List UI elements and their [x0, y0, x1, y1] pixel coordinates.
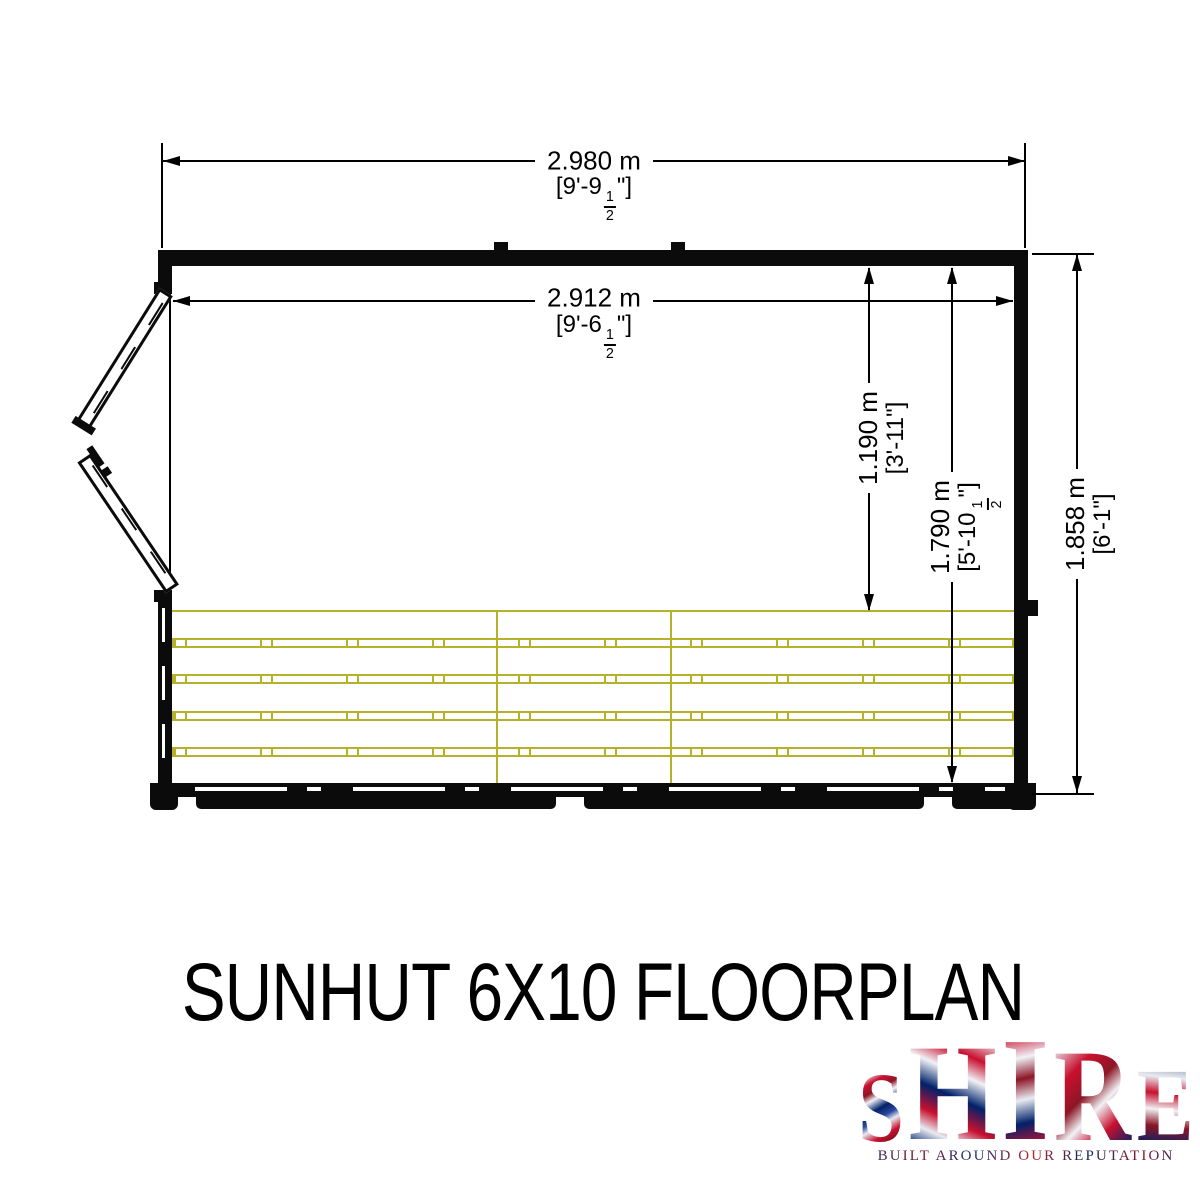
- dimension-overall-depth-imperial: [6'-1"]: [1090, 493, 1117, 554]
- door-hinge: [154, 590, 172, 602]
- staging-slat: [172, 711, 1014, 721]
- staging-slat: [172, 638, 1014, 648]
- dimension-overall-width-imperial: [9'-912"]: [556, 173, 632, 223]
- page-title: SUNHUT 6X10 FLOORPLAN: [182, 946, 1024, 1040]
- door-frame-line: [169, 290, 171, 594]
- arrow-down-icon: [864, 594, 874, 611]
- arrow-right-icon: [1008, 156, 1025, 166]
- dimension-overall-depth-metric: 1.858 m: [1061, 477, 1090, 571]
- staging-slat: [172, 674, 1014, 684]
- staging-front-edge: [172, 610, 1014, 612]
- arrow-up-icon: [864, 267, 874, 284]
- base-bearer: [196, 797, 556, 809]
- staging-slat: [172, 747, 1014, 757]
- logo-letter: H: [909, 1043, 997, 1144]
- staging-section-divider: [670, 610, 672, 783]
- arrow-down-icon: [947, 766, 957, 783]
- dimension-internal-depth-metric: 1.790 m: [926, 480, 955, 574]
- shire-logo: S H I R E BUILT AROUND OUR REPUTATION: [858, 1036, 1194, 1165]
- ext-line-bottom-right: [1032, 793, 1094, 795]
- logo-letter: I: [1002, 1036, 1049, 1144]
- staging-section-divider: [496, 610, 498, 783]
- dimension-bench-depth: 1.190 m [3'-11"]: [851, 383, 913, 493]
- arrow-up-icon: [1072, 254, 1082, 271]
- arrow-down-icon: [1072, 776, 1082, 793]
- window-catch: [1028, 600, 1038, 616]
- dimension-internal-width-metric: 2.912 m: [535, 283, 653, 314]
- door-glazing-line: [92, 465, 170, 579]
- roof-bar-tick: [494, 242, 508, 250]
- fraction: 12: [971, 498, 1004, 510]
- shire-logo-word: S H I R E: [888, 1036, 1164, 1144]
- arrow-up-icon: [947, 267, 957, 284]
- fraction: 12: [604, 328, 616, 361]
- arrow-left-icon: [173, 296, 190, 306]
- door-glazing-line: [90, 302, 164, 418]
- logo-letter: E: [1137, 1068, 1194, 1144]
- arrow-left-icon: [163, 156, 180, 166]
- dimension-bench-depth-imperial: [3'-11"]: [883, 402, 910, 475]
- dimension-internal-width-imperial: [9'-612"]: [556, 311, 632, 361]
- logo-letter: R: [1054, 1048, 1132, 1144]
- wall-right: [1014, 250, 1028, 797]
- door-leaf-lower: [77, 454, 179, 594]
- wall-top: [158, 250, 1028, 266]
- dimension-internal-depth-imperial: [5'-1012"]: [955, 482, 1004, 572]
- dimension-internal-depth: 1.790 m [5'-1012"]: [923, 472, 1007, 582]
- dimension-overall-width-metric: 2.980 m: [535, 146, 653, 177]
- glazing-slit-left-wall: [162, 608, 165, 782]
- wall-left-bottom: [158, 594, 172, 797]
- roof-bar-tick: [671, 242, 685, 250]
- dimension-bench-depth-metric: 1.190 m: [854, 391, 883, 485]
- door-end-cap: [71, 416, 96, 436]
- logo-letter: S: [858, 1071, 904, 1144]
- floorplan-canvas: 2.980 m [9'-912"] 2.912 m [9'-612"]: [0, 0, 1200, 1200]
- fraction: 12: [604, 190, 616, 223]
- arrow-right-icon: [996, 296, 1013, 306]
- base-bearer: [584, 797, 924, 809]
- dimension-overall-depth: 1.858 m [6'-1"]: [1058, 469, 1120, 579]
- door-leaf-upper: [75, 288, 172, 430]
- glazing-slit-bottom-wall: [195, 787, 1005, 791]
- ext-line-top-right: [1032, 253, 1094, 255]
- corner-post: [150, 783, 178, 810]
- base-bearer: [952, 797, 1018, 809]
